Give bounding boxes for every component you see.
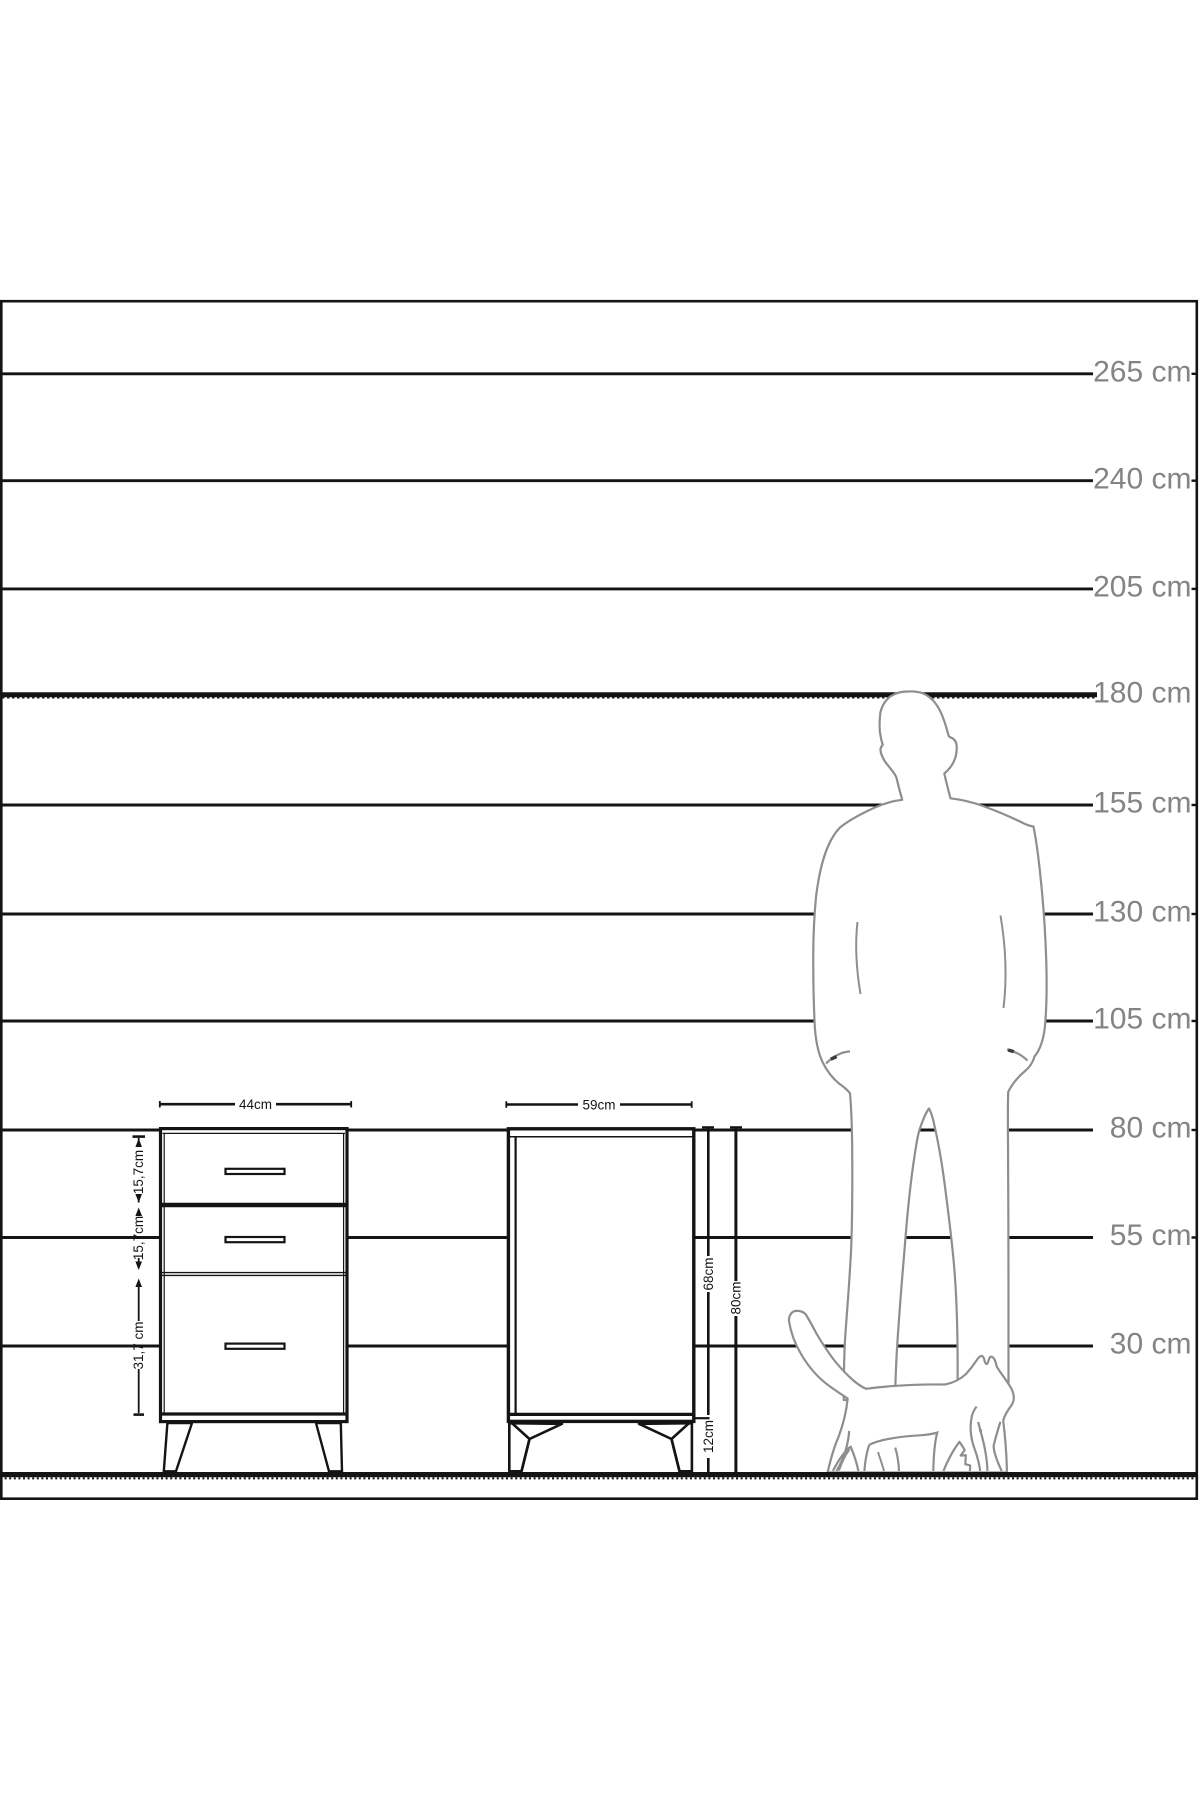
svg-text:265 cm: 265 cm: [1093, 355, 1191, 388]
svg-text:80 cm: 80 cm: [1110, 1112, 1192, 1145]
svg-text:30 cm: 30 cm: [1110, 1328, 1192, 1361]
svg-text:205 cm: 205 cm: [1093, 571, 1191, 604]
svg-text:31,7 cm: 31,7 cm: [131, 1321, 146, 1369]
svg-text:130 cm: 130 cm: [1093, 896, 1191, 929]
svg-text:59cm: 59cm: [582, 1097, 615, 1112]
svg-text:44cm: 44cm: [239, 1097, 272, 1112]
svg-text:180 cm: 180 cm: [1093, 677, 1191, 710]
svg-text:155 cm: 155 cm: [1093, 787, 1191, 820]
svg-text:80cm: 80cm: [728, 1281, 743, 1314]
svg-text:15,7cm: 15,7cm: [131, 1150, 146, 1194]
svg-text:68cm: 68cm: [701, 1257, 716, 1290]
svg-text:105 cm: 105 cm: [1093, 1003, 1191, 1036]
svg-text:55 cm: 55 cm: [1110, 1219, 1192, 1252]
svg-text:15,7cm: 15,7cm: [131, 1216, 146, 1260]
svg-text:240 cm: 240 cm: [1093, 462, 1191, 495]
svg-text:12cm: 12cm: [701, 1420, 716, 1453]
